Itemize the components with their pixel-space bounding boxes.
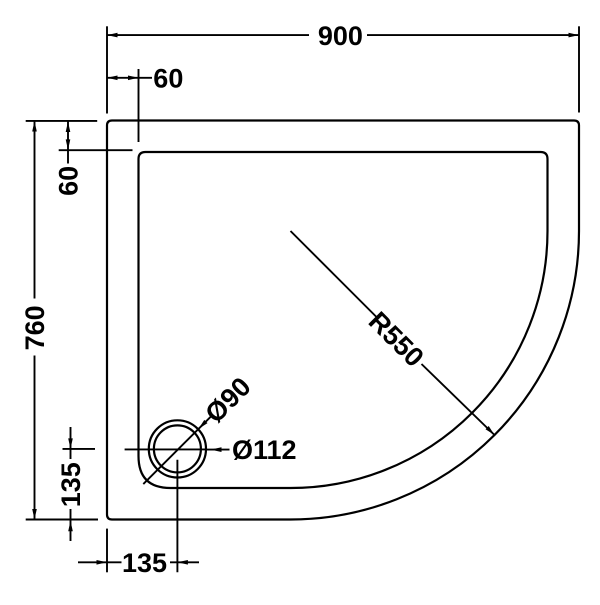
svg-text:135: 135 xyxy=(56,462,86,507)
svg-text:900: 900 xyxy=(318,21,363,51)
svg-text:760: 760 xyxy=(20,305,50,350)
svg-text:135: 135 xyxy=(122,548,167,578)
svg-text:Ø112: Ø112 xyxy=(232,435,297,465)
svg-text:60: 60 xyxy=(153,63,183,93)
svg-text:60: 60 xyxy=(54,166,84,196)
